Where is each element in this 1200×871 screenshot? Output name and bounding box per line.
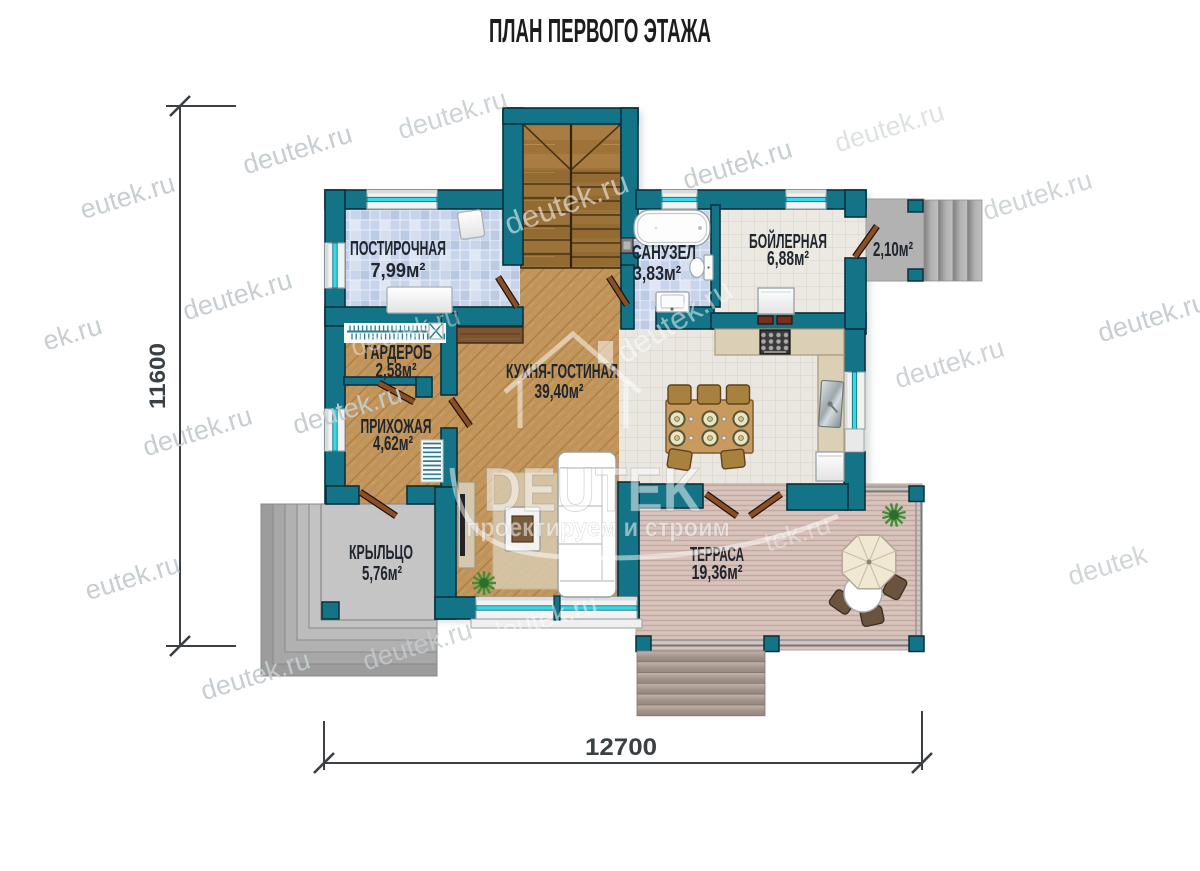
svg-text:проектируем и строим: проектируем и строим — [466, 512, 730, 542]
svg-text:11600: 11600 — [145, 343, 170, 409]
svg-text:КРЫЛЬЦО: КРЫЛЬЦО — [349, 542, 413, 564]
svg-text:5,76м²: 5,76м² — [362, 563, 402, 585]
svg-text:7,99м²: 7,99м² — [371, 260, 426, 282]
svg-text:ПОСТИРОЧНАЯ: ПОСТИРОЧНАЯ — [350, 238, 446, 260]
svg-text:ПЛАН ПЕРВОГО ЭТАЖА: ПЛАН ПЕРВОГО ЭТАЖА — [489, 12, 711, 49]
svg-text:19,36м²: 19,36м² — [692, 562, 743, 584]
svg-text:12700: 12700 — [585, 734, 657, 761]
svg-text:3,83м²: 3,83м² — [633, 263, 681, 285]
svg-text:САНУЗЕЛ: САНУЗЕЛ — [632, 242, 696, 264]
svg-text:6,88м²: 6,88м² — [767, 248, 809, 270]
svg-text:39,40м²: 39,40м² — [535, 381, 584, 403]
svg-text:4,62м²: 4,62м² — [373, 433, 413, 455]
svg-text:2,10м²: 2,10м² — [873, 239, 913, 261]
